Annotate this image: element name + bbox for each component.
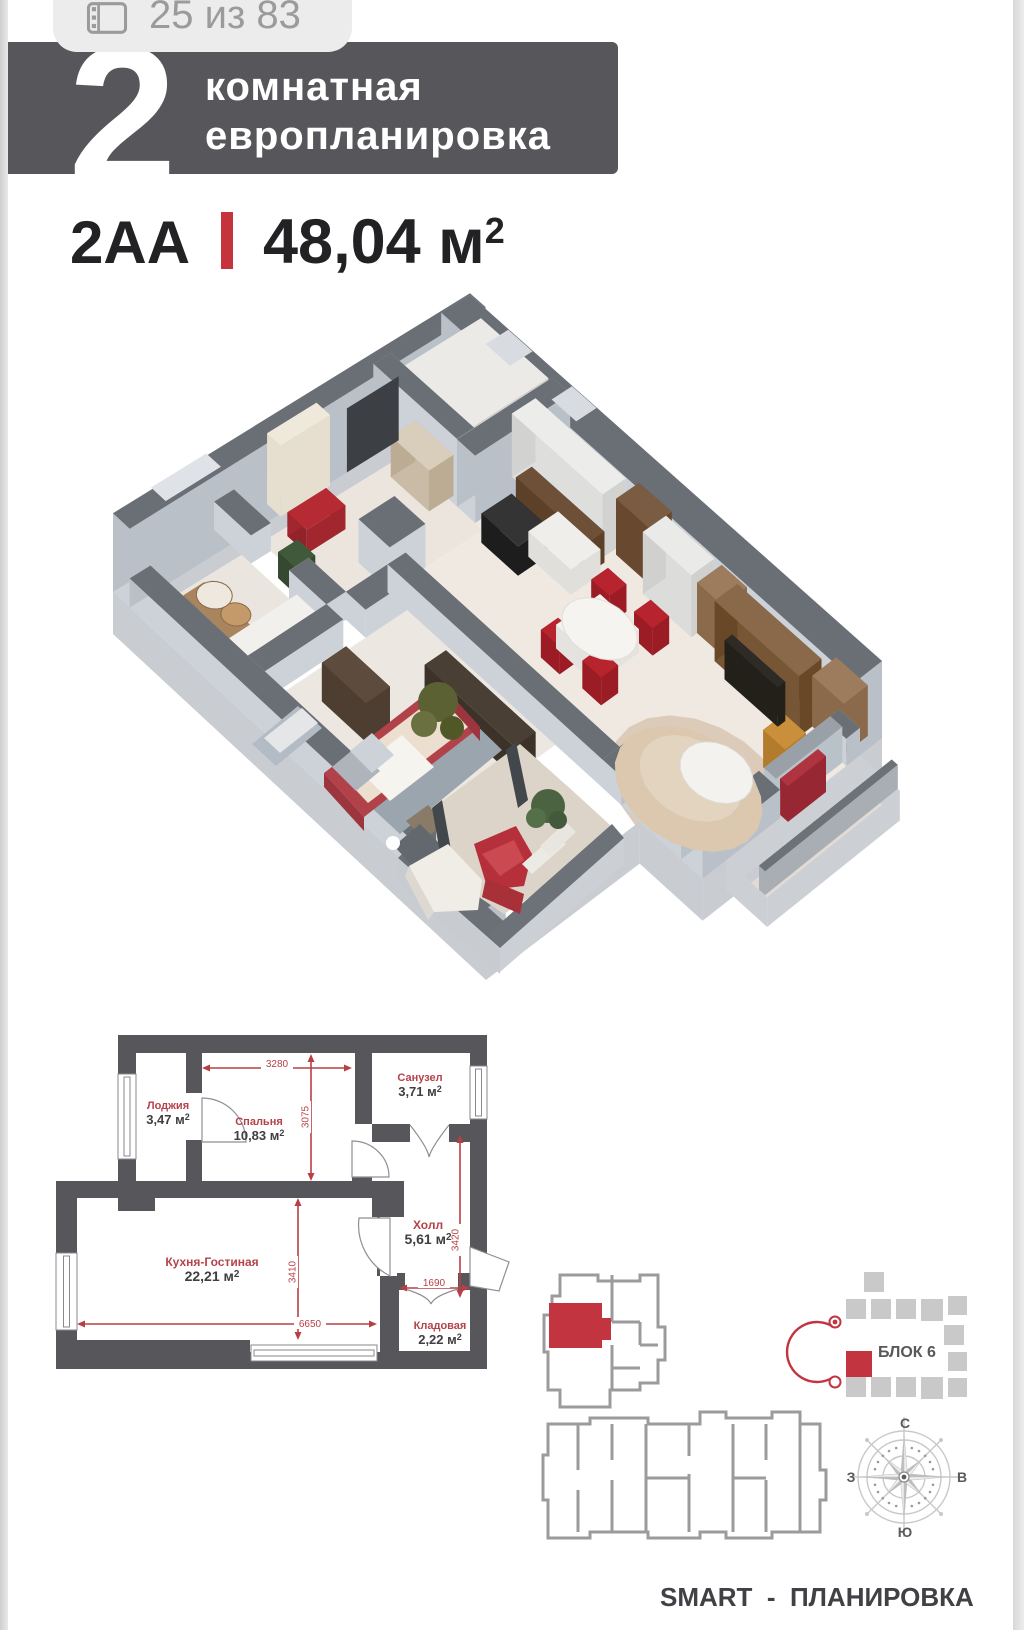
svg-text:Кухня-Гостиная: Кухня-Гостиная (165, 1255, 258, 1269)
svg-text:Спальня: Спальня (235, 1116, 283, 1128)
svg-text:Кладовая: Кладовая (414, 1320, 467, 1332)
svg-text:В: В (957, 1469, 967, 1485)
svg-text:10,83 м2: 10,83 м2 (234, 1128, 285, 1143)
svg-text:3410: 3410 (288, 1260, 299, 1283)
svg-text:22,21 м2: 22,21 м2 (185, 1268, 240, 1284)
svg-text:Санузел: Санузел (397, 1072, 442, 1084)
svg-text:БЛОК 6: БЛОК 6 (878, 1344, 936, 1361)
svg-text:3,47 м2: 3,47 м2 (146, 1112, 190, 1127)
svg-text:6650: 6650 (299, 1319, 322, 1330)
svg-text:Холл: Холл (413, 1218, 443, 1232)
svg-text:1690: 1690 (423, 1278, 446, 1289)
svg-text:3280: 3280 (266, 1059, 289, 1070)
svg-text:2,22 м2: 2,22 м2 (418, 1332, 462, 1347)
svg-text:Ю: Ю (898, 1524, 912, 1540)
svg-text:3420: 3420 (451, 1228, 462, 1251)
svg-text:3,71 м2: 3,71 м2 (398, 1084, 442, 1099)
svg-text:З: З (847, 1469, 856, 1485)
svg-text:5,61 м2: 5,61 м2 (404, 1231, 452, 1247)
svg-text:3075: 3075 (301, 1105, 312, 1128)
svg-text:С: С (900, 1415, 910, 1431)
svg-text:Лоджия: Лоджия (147, 1100, 189, 1112)
